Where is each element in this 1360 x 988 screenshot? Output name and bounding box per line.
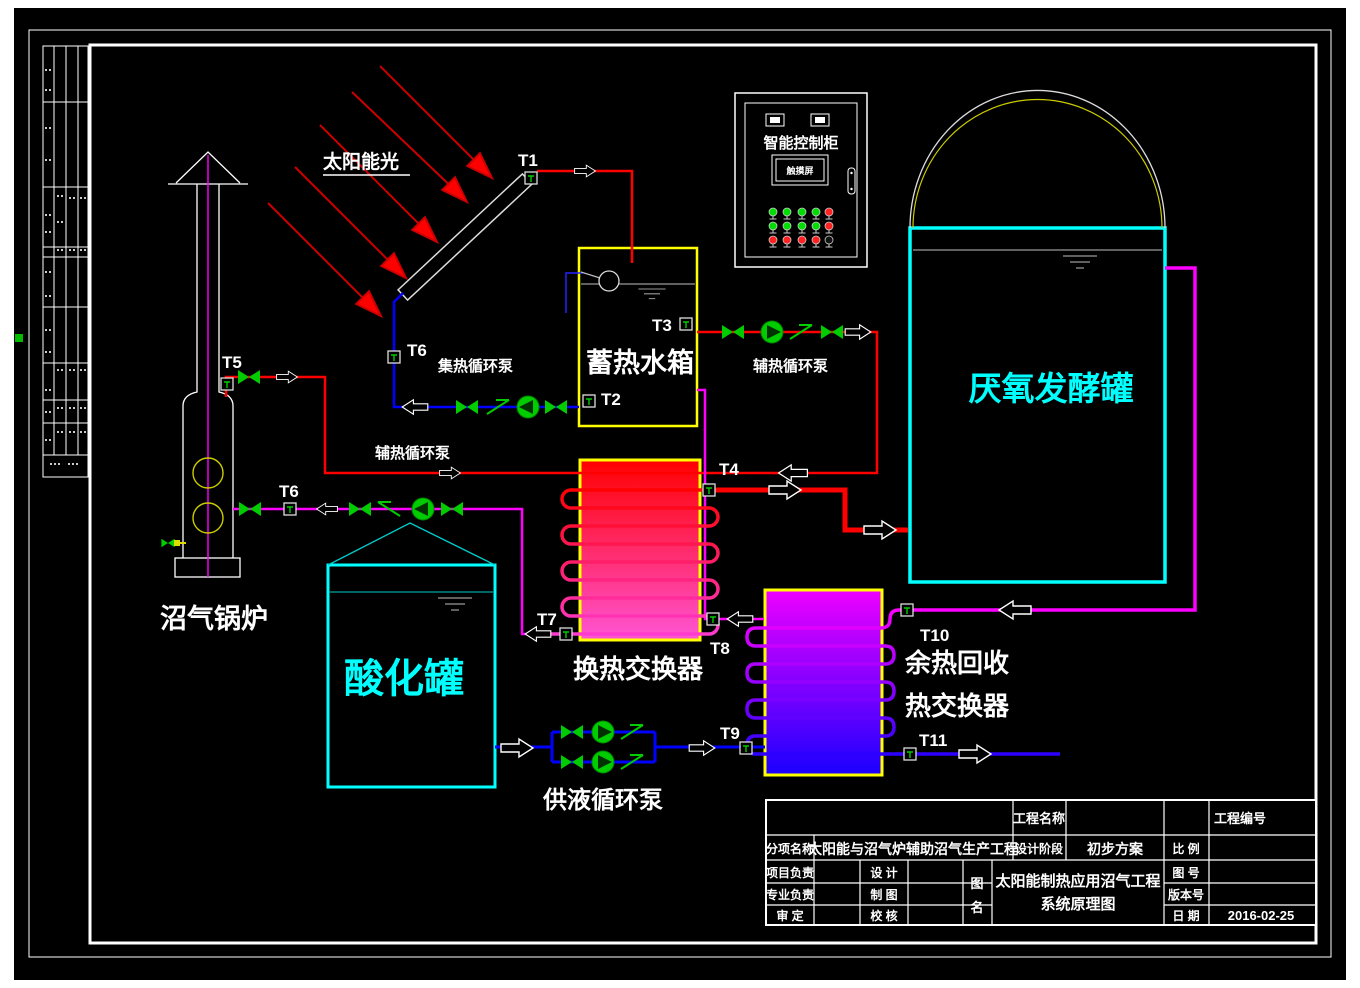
scale-label: 比 例 xyxy=(1172,841,1199,856)
pump-icon xyxy=(412,498,434,520)
approve-label: 审 定 xyxy=(776,908,803,923)
storage-tank-label: 蓄热水箱 xyxy=(586,347,694,378)
drawing-name-char1: 图 xyxy=(970,876,983,891)
digester-label: 厌氧发酵罐 xyxy=(969,370,1134,407)
waste-heat-label-1: 余热回收 xyxy=(904,648,1009,678)
drawing-title-line1: 太阳能制热应用沼气工程 xyxy=(995,872,1160,890)
pump-icon xyxy=(761,321,783,343)
temp-sensor-t1 xyxy=(525,172,537,184)
solar-light-label: 太阳能光 xyxy=(323,150,399,173)
temp-sensor-t9 xyxy=(740,742,752,754)
project-name-label: 工程名称 xyxy=(1013,811,1065,826)
temp-sensor-t6a xyxy=(388,351,400,363)
pump-icon xyxy=(517,396,539,418)
tag-t5: T5 xyxy=(222,353,242,372)
tag-t2: T2 xyxy=(601,390,621,409)
temp-sensor-t7 xyxy=(560,628,572,640)
temp-sensor-t4 xyxy=(703,484,715,496)
cad-canvas: { "labels": { "solar_light": "太阳能光", "co… xyxy=(0,0,1360,988)
waste-heat-label-2: 热交换器 xyxy=(905,691,1010,721)
temp-sensor-t6b xyxy=(284,503,296,515)
aux-pump-right-label: 辅热循环泵 xyxy=(753,357,828,375)
schematic-drawing: 智能控制柜 触摸屏 xyxy=(0,0,1360,988)
title-block: 工程名称 工程编号 分项名称 太阳能与沼气炉辅助沼气生产工程 设计阶段 初步方案… xyxy=(766,800,1316,925)
drawing-name-char2: 名 xyxy=(970,900,983,915)
temp-sensor-t10 xyxy=(901,604,913,616)
tag-t6b: T6 xyxy=(279,482,299,501)
aux-pump-left-label: 辅热循环泵 xyxy=(375,444,450,462)
boiler-label: 沼气锅炉 xyxy=(160,604,268,634)
draft-label: 制 图 xyxy=(870,887,897,902)
date-label: 日 期 xyxy=(1172,908,1199,923)
check-label: 校 核 xyxy=(870,908,897,923)
acid-tank-label: 酸化罐 xyxy=(344,657,464,701)
main-heat-exchanger xyxy=(580,460,700,640)
tag-t1: T1 xyxy=(518,151,538,170)
float-valve-icon xyxy=(599,271,619,291)
temp-sensor-t8 xyxy=(707,613,719,625)
tag-t7: T7 xyxy=(537,610,557,629)
heat-exchanger-label: 换热交换器 xyxy=(573,654,704,684)
tag-t10: T10 xyxy=(920,626,949,645)
drawing-title-line2: 系统原理图 xyxy=(1040,895,1115,913)
temp-sensor-t2 xyxy=(583,395,595,407)
design-label: 设 计 xyxy=(870,865,897,880)
design-stage-label: 设计阶段 xyxy=(1015,841,1064,856)
tag-t9: T9 xyxy=(720,724,740,743)
design-stage-value: 初步方案 xyxy=(1087,841,1144,857)
discipline-lead-label: 专业负责 xyxy=(766,887,814,902)
touch-screen-label: 触摸屏 xyxy=(785,165,813,176)
supply-pump-label: 供液循环泵 xyxy=(542,786,663,814)
drawing-no-label: 图 号 xyxy=(1172,865,1199,880)
pump-icon xyxy=(592,721,614,743)
tag-t3: T3 xyxy=(652,316,672,335)
version-label: 版本号 xyxy=(1168,887,1204,902)
collector-pump-label: 集热循环泵 xyxy=(437,357,513,375)
tag-t11: T11 xyxy=(919,731,947,750)
tag-t4: T4 xyxy=(719,460,739,479)
pump-icon xyxy=(592,751,614,773)
date-value: 2016-02-25 xyxy=(1228,908,1295,923)
project-no-label: 工程编号 xyxy=(1214,811,1266,826)
sub-item-label: 分项名称 xyxy=(766,841,814,856)
tag-t6a: T6 xyxy=(407,341,427,360)
project-lead-label: 项目负责 xyxy=(766,865,814,880)
sub-item-value: 太阳能与沼气炉辅助沼气生产工程 xyxy=(808,841,1018,857)
tag-t8: T8 xyxy=(710,639,730,658)
temp-sensor-t11 xyxy=(904,748,916,760)
cabinet-label: 智能控制柜 xyxy=(763,134,838,152)
green-marker xyxy=(15,334,23,342)
temp-sensor-t5 xyxy=(221,378,233,390)
temp-sensor-t3 xyxy=(680,318,692,330)
